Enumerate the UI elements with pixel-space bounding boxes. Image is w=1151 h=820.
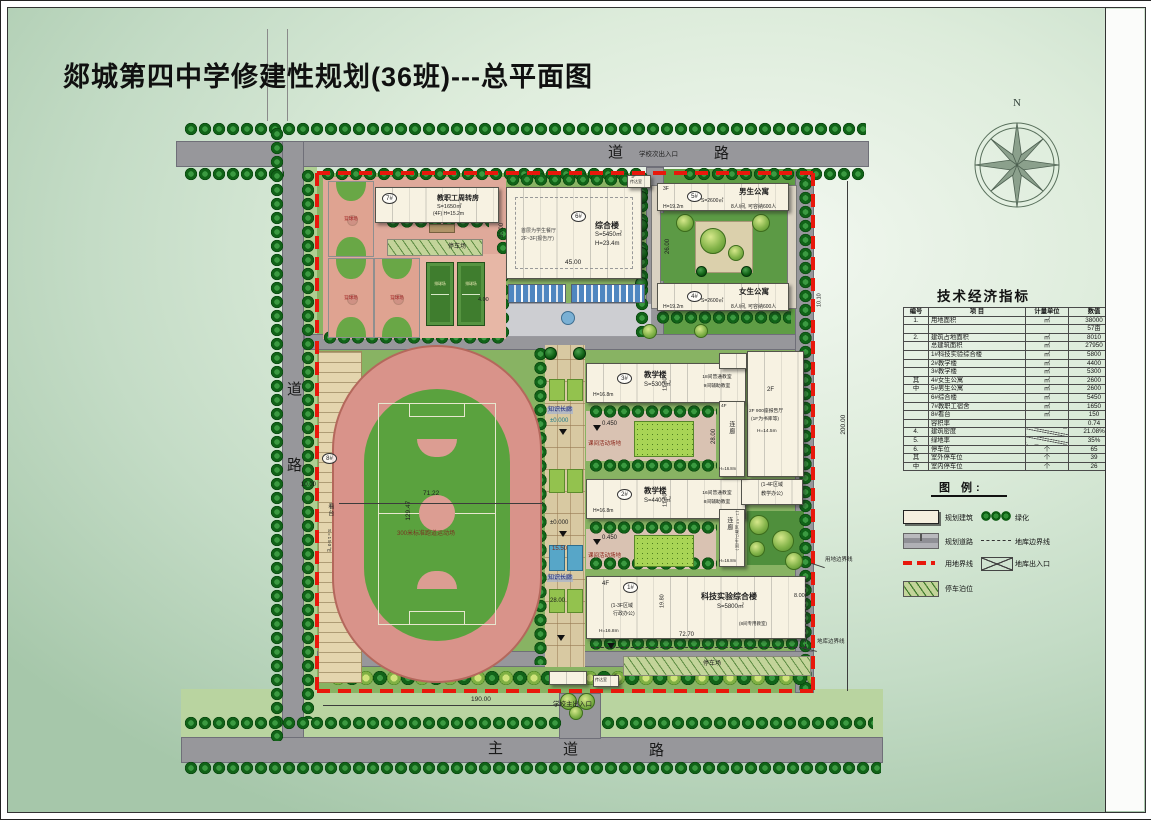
legend-item-label: 用地界线 — [945, 559, 973, 569]
tree — [749, 541, 765, 557]
dim-28: 28.00 — [550, 598, 565, 605]
table-cell: ㎡ — [1026, 350, 1069, 359]
volleyball-court: 排球场 — [426, 262, 454, 326]
compass-rose — [963, 97, 1071, 217]
parking-hatch-north — [387, 239, 483, 256]
trees-row — [184, 758, 881, 778]
stand-number: 8# — [322, 453, 337, 464]
legend-garage-entrance-swatch — [981, 557, 1013, 571]
building-1-area: S=5800㎡ — [717, 604, 744, 611]
dim-10: 10.00 — [301, 482, 316, 489]
building-1-zone: (1-3F区域 — [611, 604, 633, 610]
table-row: 57亩 — [904, 325, 1120, 334]
table-row: 总建筑面积㎡27950 — [904, 342, 1120, 351]
table-cell: 2. — [904, 333, 929, 342]
table-row: 容积率0.74 — [904, 419, 1120, 428]
table-cell: ㎡ — [1026, 359, 1069, 368]
building-7-spec: (4F) H=15.2m — [433, 212, 464, 218]
table-cell: 建筑占地面积 — [929, 333, 1026, 342]
dim-line — [339, 503, 543, 504]
table-header-cell: 计量单位 — [1026, 308, 1069, 317]
corridor-planter — [567, 379, 583, 401]
building-7-entrance — [429, 224, 455, 233]
west-road-name: 路 — [287, 457, 302, 474]
building-1-floors: 4F — [602, 581, 609, 588]
trees-row — [589, 405, 717, 418]
building-5-floors: 3F — [663, 187, 669, 193]
elevation-marker — [593, 425, 601, 431]
site-boundary-top — [317, 171, 815, 175]
table-cell: 其 — [904, 454, 929, 463]
legend-site-boundary-swatch — [903, 561, 935, 565]
building-5-number: 5# — [687, 191, 702, 202]
yard-elevation: 0.450 — [602, 421, 617, 428]
table-header-cell: 项 目 — [929, 308, 1026, 317]
elevation-marker — [559, 531, 567, 537]
table-cell: 容积率 — [929, 419, 1026, 428]
compass-north-label: N — [963, 97, 1071, 109]
trees-row — [589, 521, 717, 534]
building-4-capacity: 8人/间, 可容纳600人 — [731, 305, 776, 311]
building-1-rooms: (8间专用教室) — [739, 621, 767, 626]
building-7-name: 教职工周转房 — [437, 195, 479, 203]
trees-row — [656, 311, 791, 324]
building-4-name: 女生公寓 — [739, 288, 769, 297]
legend-greenery-swatch — [981, 510, 1011, 522]
plaza — [504, 303, 652, 337]
table-cell — [904, 342, 929, 351]
stand-area: S=150㎡ — [327, 529, 332, 553]
building-3-height: H=16.8m — [593, 393, 613, 399]
basketball-court: 篮球场 — [328, 258, 374, 338]
corridor-planter — [567, 469, 583, 493]
legend-item-label: 停车泊位 — [945, 584, 973, 594]
legend-underline — [931, 495, 1007, 497]
tree — [741, 266, 752, 277]
north-road-name: 道 — [608, 144, 623, 161]
table-cell: 8#看台 — [929, 411, 1026, 420]
east-wing-floors: 2F — [767, 387, 774, 394]
entry-pavilion — [549, 671, 587, 685]
table-cell — [904, 411, 929, 420]
building-5-area: S=2600㎡ — [701, 199, 723, 205]
table-cell: ㎡ — [1026, 368, 1069, 377]
yard-planter — [634, 421, 694, 457]
dim-8: 8.00 — [794, 593, 805, 599]
corridor-name: 连廊 — [725, 517, 732, 531]
table-cell: 个 — [1026, 454, 1069, 463]
dim-71-22: 71.22 — [423, 490, 439, 497]
trees-column — [267, 127, 287, 741]
dim-30: 30.00 — [499, 223, 506, 238]
building-5-capacity: 8人/间, 可容纳600人 — [731, 205, 776, 211]
tree — [785, 552, 803, 570]
building-6-note: 2F~3F(报告厅) — [521, 237, 554, 243]
table-cell: 1. — [904, 316, 929, 325]
legend-title: 图 例: — [939, 479, 984, 495]
table-cell: 个 — [1026, 462, 1069, 471]
building-6-area: S=5450㎡ — [595, 232, 622, 239]
parking-label: 停车场 — [703, 661, 721, 668]
bike-shed — [508, 284, 566, 303]
table-cell: 室内停车位 — [929, 462, 1026, 471]
table-row: 2.建筑占地面积㎡8010 — [904, 333, 1120, 342]
legend-item-label: 地库边界线 — [1015, 537, 1050, 547]
volleyball-court: 排球场 — [457, 262, 485, 326]
table-row: 1#科技实验综合楼㎡5800 — [904, 350, 1120, 359]
table-cell: 停车位 — [929, 445, 1026, 454]
legend-item-label: 地库出入口 — [1015, 559, 1050, 569]
basketball-court: 篮球场 — [374, 258, 420, 338]
garage-boundary-line — [591, 647, 807, 648]
table-row: 中室内停车位个26 — [904, 462, 1120, 471]
penalty-box — [409, 611, 465, 625]
dim-line-200 — [847, 181, 848, 691]
table-row: 5.绿地率35% — [904, 436, 1120, 445]
site-boundary-right — [811, 173, 815, 693]
gatehouse-label: 传达室 — [630, 180, 642, 185]
table-cell: ㎡ — [1026, 333, 1069, 342]
legend-item-label: 规划道路 — [945, 537, 973, 547]
east-junction-block — [719, 353, 747, 369]
table-header-row: 编号项 目计量单位数值 — [904, 308, 1120, 317]
dim-11-60: 11.60 — [663, 377, 669, 390]
dim-129-47: 129.47 — [405, 501, 412, 521]
table-cell — [929, 325, 1026, 334]
building-1-height: H=16.8m — [599, 629, 619, 635]
building-3-rooms: 18间普通教室 — [691, 375, 743, 381]
north-road-name: 路 — [714, 145, 729, 162]
elevation-marker — [607, 643, 615, 649]
table-row: 2#教学楼㎡4400 — [904, 359, 1120, 368]
dim-11-60: 11.60 — [663, 493, 669, 506]
east-office-label: (1-4F区域 — [741, 483, 803, 489]
table-cell: 用地面积 — [929, 316, 1026, 325]
table-row: 8#看台㎡150 — [904, 411, 1120, 420]
tree — [544, 347, 557, 360]
corridor-planter — [549, 469, 565, 493]
building-6-name: 综合楼 — [595, 221, 619, 230]
west-road-name: 道 — [287, 381, 302, 398]
corridor-height: H=16.8m — [719, 467, 736, 472]
table-cell: 总建筑面积 — [929, 342, 1026, 351]
north-compass-icon: N — [963, 97, 1071, 217]
site-boundary-left — [315, 173, 319, 695]
table-cell — [1026, 325, 1069, 334]
table-cell: 5. — [904, 436, 929, 445]
building-2-rooms: 8间辅助教室 — [691, 500, 743, 506]
corridor-planter — [567, 589, 583, 613]
trees-row — [506, 173, 646, 186]
table-cell: 6#综合楼 — [929, 393, 1026, 402]
trees-row — [184, 713, 562, 733]
corridor-name: 连廊 — [727, 421, 734, 435]
stand-name: 看台 — [326, 503, 333, 517]
legend-road-swatch — [903, 533, 939, 549]
table-cell: 室外停车位 — [929, 454, 1026, 463]
penalty-box — [409, 403, 465, 417]
table-header-cell: 编号 — [904, 308, 929, 317]
trees-row — [601, 713, 873, 733]
tree — [728, 245, 744, 261]
legend-building-swatch — [903, 510, 939, 524]
table-cell — [904, 325, 929, 334]
building-4-area: S=2600㎡ — [701, 299, 723, 305]
corridor-floors: 4F — [721, 404, 727, 410]
building-4-number: 4# — [687, 291, 702, 302]
dim-45: 45.00 — [565, 259, 581, 266]
east-wing-hall: 2F 900座报告厅 — [749, 409, 783, 415]
table-row: 7#教职工宿舍㎡1650 — [904, 402, 1120, 411]
frame-right-line — [1105, 7, 1106, 813]
table-cell: 1#科技实验综合楼 — [929, 350, 1026, 359]
table-cell: 5#男生公寓 — [929, 385, 1026, 394]
table-row: 其4#女生公寓㎡2600 — [904, 376, 1120, 385]
building-5-name: 男生公寓 — [739, 188, 769, 197]
dim-19-80: 19.80 — [660, 594, 666, 608]
building-1-zone: 行政办公) — [613, 612, 635, 618]
table-cell — [1026, 436, 1069, 445]
table-cell — [904, 350, 929, 359]
legend-parking-swatch — [903, 581, 939, 597]
table-cell — [1026, 428, 1069, 437]
elevation-marker — [593, 539, 601, 545]
dim-200: 200.00 — [840, 415, 847, 435]
table-row: 4.建筑密度21.08% — [904, 428, 1120, 437]
corridor-elevation: ±0.000 — [550, 418, 568, 425]
dim-10-10: 10.10 — [817, 293, 823, 307]
gatehouse-label: 传达室 — [595, 678, 607, 683]
fountain — [561, 311, 575, 325]
table-cell: ㎡ — [1026, 316, 1069, 325]
building-4-height: H=19.2m — [663, 305, 683, 311]
table-cell: 4. — [904, 428, 929, 437]
pitch-center-circle — [419, 495, 455, 531]
building-2-rooms: 16间普通教室 — [691, 491, 743, 497]
building-1-name: 科技实验综合楼 — [701, 592, 757, 601]
table-cell: ㎡ — [1026, 402, 1069, 411]
corridor-elevation: ±0.000 — [550, 520, 568, 527]
east-wing-hall: (1F为书库等) — [751, 417, 779, 423]
table-cell: 6. — [904, 445, 929, 454]
trees-row — [589, 459, 717, 472]
east-office-label: 教学办公) — [741, 492, 803, 498]
bike-shed — [571, 284, 645, 303]
table-cell: 建筑密度 — [929, 428, 1026, 437]
tree — [573, 347, 586, 360]
building-7-number: 7# — [382, 193, 397, 204]
table-cell: 中 — [904, 462, 929, 471]
building-3-rooms: 9间辅助教室 — [691, 384, 743, 390]
main-road-name: 主 — [488, 740, 503, 757]
table-row: 6#综合楼㎡5450 — [904, 393, 1120, 402]
dim-28: 28.00 — [711, 429, 718, 444]
building-6-number: 6# — [571, 211, 586, 222]
site-plan-sheet: 郯城第四中学修建性规划(36班)---总平面图 篮球场 — [0, 0, 1151, 820]
table-row: 1.用地面积㎡38000 — [904, 316, 1120, 325]
tree — [700, 228, 726, 254]
indicator-table-title: 技术经济指标 — [937, 285, 1030, 305]
tree — [642, 324, 657, 339]
dim-4: 4.00 — [478, 297, 489, 303]
elevation-marker — [559, 429, 567, 435]
court-label: 排球场 — [427, 282, 453, 287]
frame-right-margin — [1106, 9, 1144, 811]
tree — [694, 324, 708, 338]
tree — [752, 214, 770, 232]
table-row: 3#教学楼㎡5300 — [904, 368, 1120, 377]
main-road-name: 道 — [563, 741, 578, 758]
parking-label: 停车场 — [448, 244, 466, 251]
table-cell — [904, 402, 929, 411]
garage-boundary-line — [805, 579, 806, 647]
dim-72-70: 72.70 — [679, 632, 694, 639]
leader-garage-boundary: 地库边界线 — [817, 639, 845, 645]
elevation-marker — [557, 635, 565, 641]
dim-26: 26.00 — [665, 239, 672, 254]
table-cell — [904, 368, 929, 377]
table-cell: ㎡ — [1026, 376, 1069, 385]
building-1-number: 1# — [623, 582, 638, 593]
table-cell: 其 — [904, 376, 929, 385]
dim-line-190 — [323, 705, 561, 706]
gatehouse-floor: 1F — [613, 673, 617, 677]
dim-15-50: 15.50 — [552, 546, 567, 553]
site-boundary-bottom — [317, 689, 815, 693]
building-2-number: 2# — [617, 489, 632, 500]
track-label: 300米标准跑道运动场 — [397, 531, 455, 538]
table-cell: ㎡ — [1026, 342, 1069, 351]
court-label: 篮球场 — [375, 295, 419, 301]
building-6-height: H=23.4m — [595, 241, 620, 248]
table-cell: ㎡ — [1026, 411, 1069, 420]
east-wing-height: H=14.5m — [757, 429, 777, 435]
table-cell: 3#教学楼 — [929, 368, 1026, 377]
building-5-height: H=19.2m — [663, 205, 683, 211]
table-cell: 7#教职工宿舍 — [929, 402, 1026, 411]
corridor-note: (1-4F区域卫生间) — [735, 511, 739, 551]
table-row: 6.停车位个65 — [904, 445, 1120, 454]
indicator-table: 编号项 目计量单位数值1.用地面积㎡3800057亩2.建筑占地面积㎡8010总… — [903, 307, 1120, 471]
table-cell: 2#教学楼 — [929, 359, 1026, 368]
corridor-height: H=16.8m — [719, 559, 736, 564]
court-label: 篮球场 — [329, 295, 373, 301]
legend-item-label: 规划建筑 — [945, 513, 973, 523]
corridor-water — [567, 545, 583, 571]
table-cell: 绿地率 — [929, 436, 1026, 445]
building-6-note: 首层为学生餐厅 — [521, 229, 556, 235]
yard-elevation: 0.450 — [602, 535, 617, 542]
leader-site-boundary: 用地边界线 — [825, 557, 853, 563]
table-cell: ㎡ — [1026, 385, 1069, 394]
table-cell — [1026, 419, 1069, 428]
table-row: 中5#男生公寓㎡2600 — [904, 385, 1120, 394]
table-row: 其室外停车位个39 — [904, 454, 1120, 463]
yard-label: 课间活动场地 — [588, 441, 621, 447]
table-cell: 个 — [1026, 445, 1069, 454]
tree — [696, 266, 707, 277]
dim-190: 190.00 — [471, 696, 491, 703]
table-cell — [904, 419, 929, 428]
yard-planter — [634, 535, 694, 567]
corridor-name: 知识长廊 — [547, 575, 573, 582]
main-road-name: 路 — [649, 742, 664, 759]
building-3-number: 3# — [617, 373, 632, 384]
basketball-court: 篮球场 — [328, 181, 374, 257]
main-entrance-label: 学校主出入口 — [553, 701, 592, 708]
page-title: 郯城第四中学修建性规划(36班)---总平面图 — [63, 55, 593, 94]
tree — [772, 530, 794, 552]
corridor-name: 知识长廊 — [547, 407, 573, 414]
secondary-entrance-label: 学校次出入口 — [639, 151, 678, 158]
legend-garage-boundary-swatch — [981, 540, 1011, 541]
table-cell: 中 — [904, 385, 929, 394]
tree — [676, 214, 694, 232]
building-7-area: S=1650㎡ — [437, 204, 462, 210]
yard-label: 课间活动场地 — [588, 553, 621, 559]
table-cell — [904, 359, 929, 368]
corridor-planter — [549, 379, 565, 401]
building-2-height: H=16.8m — [593, 509, 613, 515]
table-cell — [904, 393, 929, 402]
court-label: 篮球场 — [329, 216, 373, 222]
tree — [749, 515, 769, 535]
court-label: 排球场 — [458, 282, 484, 287]
legend-item-label: 绿化 — [1015, 513, 1029, 523]
table-cell: 4#女生公寓 — [929, 376, 1026, 385]
table-cell: ㎡ — [1026, 393, 1069, 402]
